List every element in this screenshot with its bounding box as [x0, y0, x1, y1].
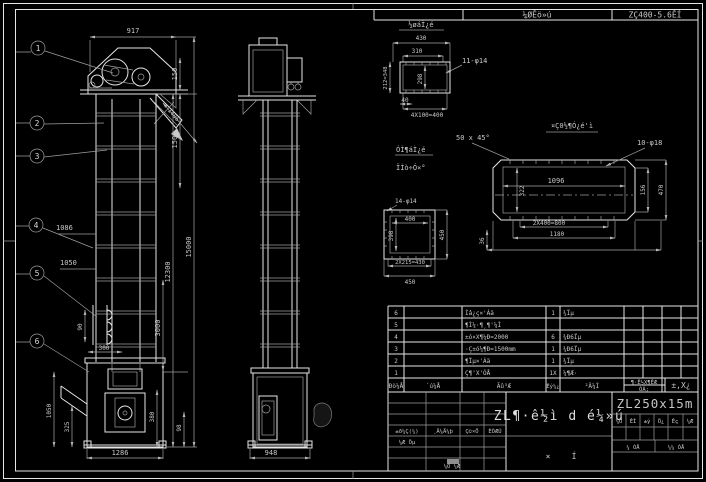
dim-2x215: 2X215=430: [395, 260, 425, 266]
sheet-header-cell-2: ZÇ400-5.6ÊÍ: [629, 9, 682, 20]
parts-row-4: 4 ±ó×X¶¼Ð=2000 6 ¾Ð6Ïµ: [394, 334, 581, 341]
balloon-6-label: 6: [35, 337, 40, 346]
row6-no: 6: [394, 310, 398, 317]
header-name: Ãû³Æ: [497, 383, 512, 390]
front-view-dimensions: 917 150 1486 1500 12300 15000 3000 380 9…: [46, 27, 197, 459]
dim-4x100: 4X100=400: [411, 112, 444, 119]
dim-212-348: 212=348: [383, 66, 389, 89]
rev-col-2: ¸Ä¼Ä¼þ: [433, 428, 453, 435]
dim-380: 380: [149, 411, 156, 422]
detail-inlet-flange: ½øáÌ¿é 430 310 11-φ14 298 212=348 40 4X1…: [383, 20, 487, 119]
front-view: 1 2 3 4 5 6 917 150 148: [16, 27, 197, 459]
model-number: ZL250x15m: [617, 396, 694, 411]
parts-row-1: 1 Ç¶'X'ÓÅ 1X ¼¶Æ·: [394, 370, 577, 377]
header-material: ²Ä¼Ì: [585, 383, 600, 390]
dim-156: 156: [640, 184, 647, 195]
row4-name: ±ó×X¶¼Ð=2000: [465, 334, 509, 341]
row4-no: 4: [394, 334, 398, 341]
parts-row-6: 6 Íâ¿ç×'Áä 1 ¾Ïµ: [394, 309, 574, 317]
parts-table-header: Ðò¼Å ´ú¼Å Ãû³Æ Êý¼¿ ²Ä¼Ì ¶·Ê½X¶ÊÆ ÓÃ; ±,…: [389, 378, 691, 393]
balloon-2: 2: [16, 116, 104, 130]
header-usage-bottom: ÓÃ;: [639, 386, 649, 393]
side-view: 948: [238, 38, 332, 459]
label-10-phi18: 10-φ18: [637, 139, 662, 147]
spec-cell-5: Êç: [672, 417, 679, 425]
balloon-2-label: 2: [35, 119, 40, 128]
header-qty: Êý¼¿: [546, 382, 559, 390]
row3-qty: 1: [551, 346, 555, 353]
balloon-1-label: 1: [36, 44, 41, 53]
row6-qty: 1: [551, 310, 555, 317]
cad-drawing-canvas: ¼ØÊö»ú ZÇ400-5.6ÊÍ: [0, 0, 706, 482]
row2-no: 2: [394, 358, 398, 365]
parts-row-3: 3 ·Ç±ó¼¶Ð=1500mm 1 ¾Ð6Ïµ: [394, 346, 581, 353]
product-name: ZL¶·ê½ì d é¼»ú: [494, 409, 625, 424]
dim-1096: 1096: [548, 177, 565, 185]
spec-cell-6: ¼Æ: [687, 419, 694, 425]
sheet-count-left: ¼ ÓÅ: [626, 444, 640, 451]
row2-qty: 1: [551, 358, 555, 365]
dim-1050-boot: 1050: [46, 403, 53, 418]
row5-name: ¶Ì¼·¶¸¶'¼Ì: [465, 322, 502, 329]
rev-col-1: ±ð¼Ç(¼): [395, 429, 418, 435]
balloon-3: 3: [16, 149, 107, 163]
dim-917: 917: [127, 27, 140, 35]
balloon-5: 5: [16, 266, 97, 317]
balloon-4-label: 4: [34, 221, 39, 230]
dim-298: 298: [417, 73, 424, 84]
dim-300: 300: [99, 345, 110, 352]
dim-398: 398: [388, 230, 395, 241]
row2-name: ¶Ïµ×'Áä: [465, 358, 491, 365]
sheet-count-right: ¼¼ ÓÅ: [668, 444, 685, 451]
dim-470: 470: [658, 184, 665, 195]
dim-310: 310: [412, 48, 423, 55]
row4-material: ¾Ð6Ïµ: [563, 334, 581, 341]
drawing-type-glyph-1: ×: [546, 452, 551, 461]
dim-450-bottom: 450: [405, 279, 416, 286]
balloon-6: 6: [16, 334, 89, 372]
row1-name: Ç¶'X'ÓÅ: [465, 370, 491, 377]
rev-col-4: ÈÕÆÚ: [488, 427, 501, 435]
row1-no: 1: [394, 370, 398, 377]
row6-name: Íâ¿ç×'Áä: [465, 309, 494, 317]
detail-square-flange: ÓÌ¶áÌ¿é ÏÌò÷Ó×° 14-φ14 400 398 450 2X215…: [384, 145, 447, 286]
spec-cell-4: Ö¿: [658, 418, 665, 425]
detail2-title-line2: ÏÌò÷Ó×°: [396, 163, 426, 172]
dim-1050-mid: 1050: [60, 259, 77, 267]
row5-no: 5: [394, 322, 398, 329]
label-14-phi14: 14-φ14: [395, 198, 417, 205]
label-11-phi14: 11-φ14: [462, 57, 487, 65]
sheet-header-cell-1: ¼ØÊö»ú: [523, 9, 552, 20]
balloon-3-label: 3: [35, 152, 40, 161]
dim-400: 400: [405, 216, 416, 223]
dim-150: 150: [171, 68, 179, 81]
dim-15000: 15000: [185, 236, 193, 257]
sign-row-label: ¼Æ Öµ: [399, 439, 416, 446]
dim-1286: 1286: [112, 449, 129, 457]
sheet-frame: ¼ØÊö»ú ZÇ400-5.6ÊÍ: [3, 3, 703, 479]
detail2-title-line1: ÓÌ¶áÌ¿é: [396, 145, 426, 154]
spec-cell-1: ¼Ö: [616, 418, 623, 425]
header-code: ´ú¼Å: [426, 383, 441, 390]
dim-98: 98: [176, 424, 183, 432]
row6-material: ¾Ïµ: [563, 310, 574, 317]
rev-col-3: Ç©×Ö: [465, 428, 478, 435]
detail3-title: ¤Ç0½¶Ó¿é'ì: [551, 121, 593, 130]
row1-qty: 1X: [549, 370, 557, 377]
label-chamfer: 50 x 45°: [456, 134, 490, 142]
dim-1500: 1500: [171, 132, 179, 149]
header-remark: ±,X¿: [671, 381, 690, 390]
spec-cell-3: ±ý: [644, 418, 651, 425]
detail-casing-section: ¤Ç0½¶Ó¿é'ì 50 x 45° 1096 322 10-φ18 156 …: [456, 121, 666, 250]
dim-2x400: 2X400=800: [533, 220, 566, 227]
balloon-4: 4: [16, 218, 93, 248]
dim-90: 90: [77, 323, 84, 331]
balloon-5-label: 5: [35, 269, 40, 278]
balloon-1: 1: [16, 41, 113, 73]
dim-450-right: 450: [439, 229, 446, 240]
row1-material: ¼¶Æ·: [563, 370, 577, 377]
dim-1180: 1180: [550, 231, 565, 238]
dim-1086: 1086: [56, 224, 73, 232]
cad-drawing: ¼ØÊö»ú ZÇ400-5.6ÊÍ: [0, 0, 706, 482]
detail1-title: ½øáÌ¿é: [408, 20, 433, 29]
header-no: Ðò¼Å: [389, 383, 404, 390]
dim-322: 322: [519, 185, 526, 196]
dim-325: 325: [64, 421, 71, 432]
drawing-type-glyph-2: Í: [572, 450, 577, 461]
parts-table: 6 Íâ¿ç×'Áä 1 ¾Ïµ 5 ¶Ì¼·¶¸¶'¼Ì 4 ±ó×X¶¼Ð=…: [388, 306, 698, 393]
dim-948: 948: [265, 449, 278, 457]
spec-cell-2: ÊÌ: [630, 417, 637, 425]
dim-12300: 12300: [164, 261, 172, 282]
row2-material: ¾Ïµ: [563, 358, 574, 365]
dim-36: 36: [479, 237, 486, 245]
dim-430: 430: [416, 35, 427, 42]
row3-no: 3: [394, 346, 398, 353]
dim-3000: 3000: [154, 320, 162, 337]
header-usage-top: ¶·Ê½X¶ÊÆ: [631, 378, 658, 386]
title-block: ±ð¼Ç(¼) ¸Ä¼Ä¼þ Ç©×Ö ÈÕÆÚ ¼Æ Öµ ¼Õ ¼Æ ZL¶…: [388, 392, 698, 471]
row4-qty: 6: [551, 334, 555, 341]
row3-material: ¾Ð6Ïµ: [563, 346, 581, 353]
row3-name: ·Ç±ó¼¶Ð=1500mm: [465, 346, 516, 353]
date-row-label: ¼Õ ¼Æ: [444, 463, 461, 470]
parts-row-5: 5 ¶Ì¼·¶¸¶'¼Ì: [394, 322, 501, 329]
parts-row-2: 2 ¶Ïµ×'Áä 1 ¾Ïµ: [394, 358, 574, 365]
dim-40: 40: [401, 97, 409, 104]
ink-blot: [314, 403, 332, 427]
